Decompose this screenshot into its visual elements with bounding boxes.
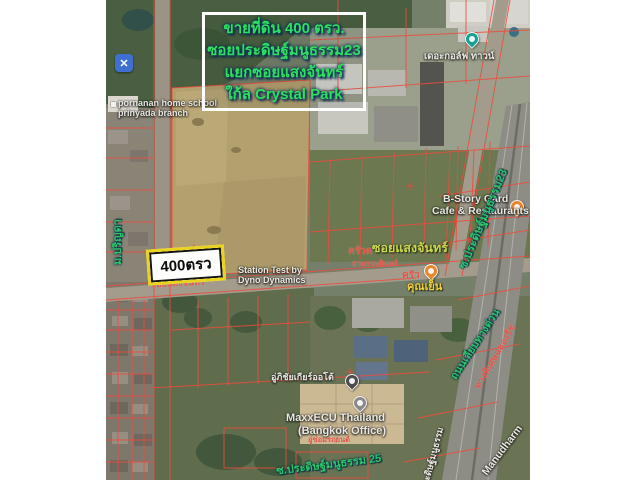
blue-cross-marker-icon[interactable]: ✕ — [115, 54, 133, 72]
road-label-soi-saengchan: ซอยแสงจันทร์ — [372, 242, 448, 256]
school-marker-icon[interactable] — [111, 102, 116, 107]
station-label-line2: Dyno Dynamics — [238, 276, 302, 286]
poi-label-khrua-fragment[interactable]: ครัวค — [348, 246, 372, 257]
satellite-map[interactable]: ✕ pornanan home school prinyada branch ม… — [106, 0, 530, 480]
land-size-label: 400ตรว — [146, 244, 226, 285]
poi-label-suan[interactable]: สวนรวมยินทร์ — [352, 260, 398, 268]
sale-annotation-line4: ใก้ล Crystal Park — [225, 84, 342, 106]
sale-annotation-line1: ขายที่ดิน 400 ตรว. — [223, 18, 344, 40]
poi-label-garage[interactable]: อู่ภิชัยเกียร์ออโต้ — [271, 373, 334, 383]
page-canvas: ✕ pornanan home school prinyada branch ม… — [0, 0, 640, 480]
village-label-prinyada[interactable]: ม.ปริญดา — [112, 185, 124, 299]
poi-label-golf-town[interactable]: เดอะกอล์ฟ ทาวน์ — [424, 52, 494, 62]
poi-label-station-test[interactable]: Station Test by Dyno Dynamics — [238, 266, 302, 286]
sale-annotation-line2: ซอยประดิษฐ์มนูธรรม23 — [207, 40, 361, 62]
poi-label-maxxecu-line1[interactable]: MaxxECU Thailand — [286, 412, 385, 424]
sale-annotation-line3: แยกซอยแสงจันทร์ — [225, 62, 344, 84]
poi-label-khrua[interactable]: ครัว — [402, 270, 420, 281]
poi-label-repair-shop[interactable]: อู่ซ่อมรถยนต์ — [308, 436, 350, 444]
poi-label-khun-yen[interactable]: คุณเย็น — [407, 281, 442, 293]
sale-annotation-box: ขายที่ดิน 400 ตรว. ซอยประดิษฐ์มนูธรรม23 … — [202, 12, 366, 111]
